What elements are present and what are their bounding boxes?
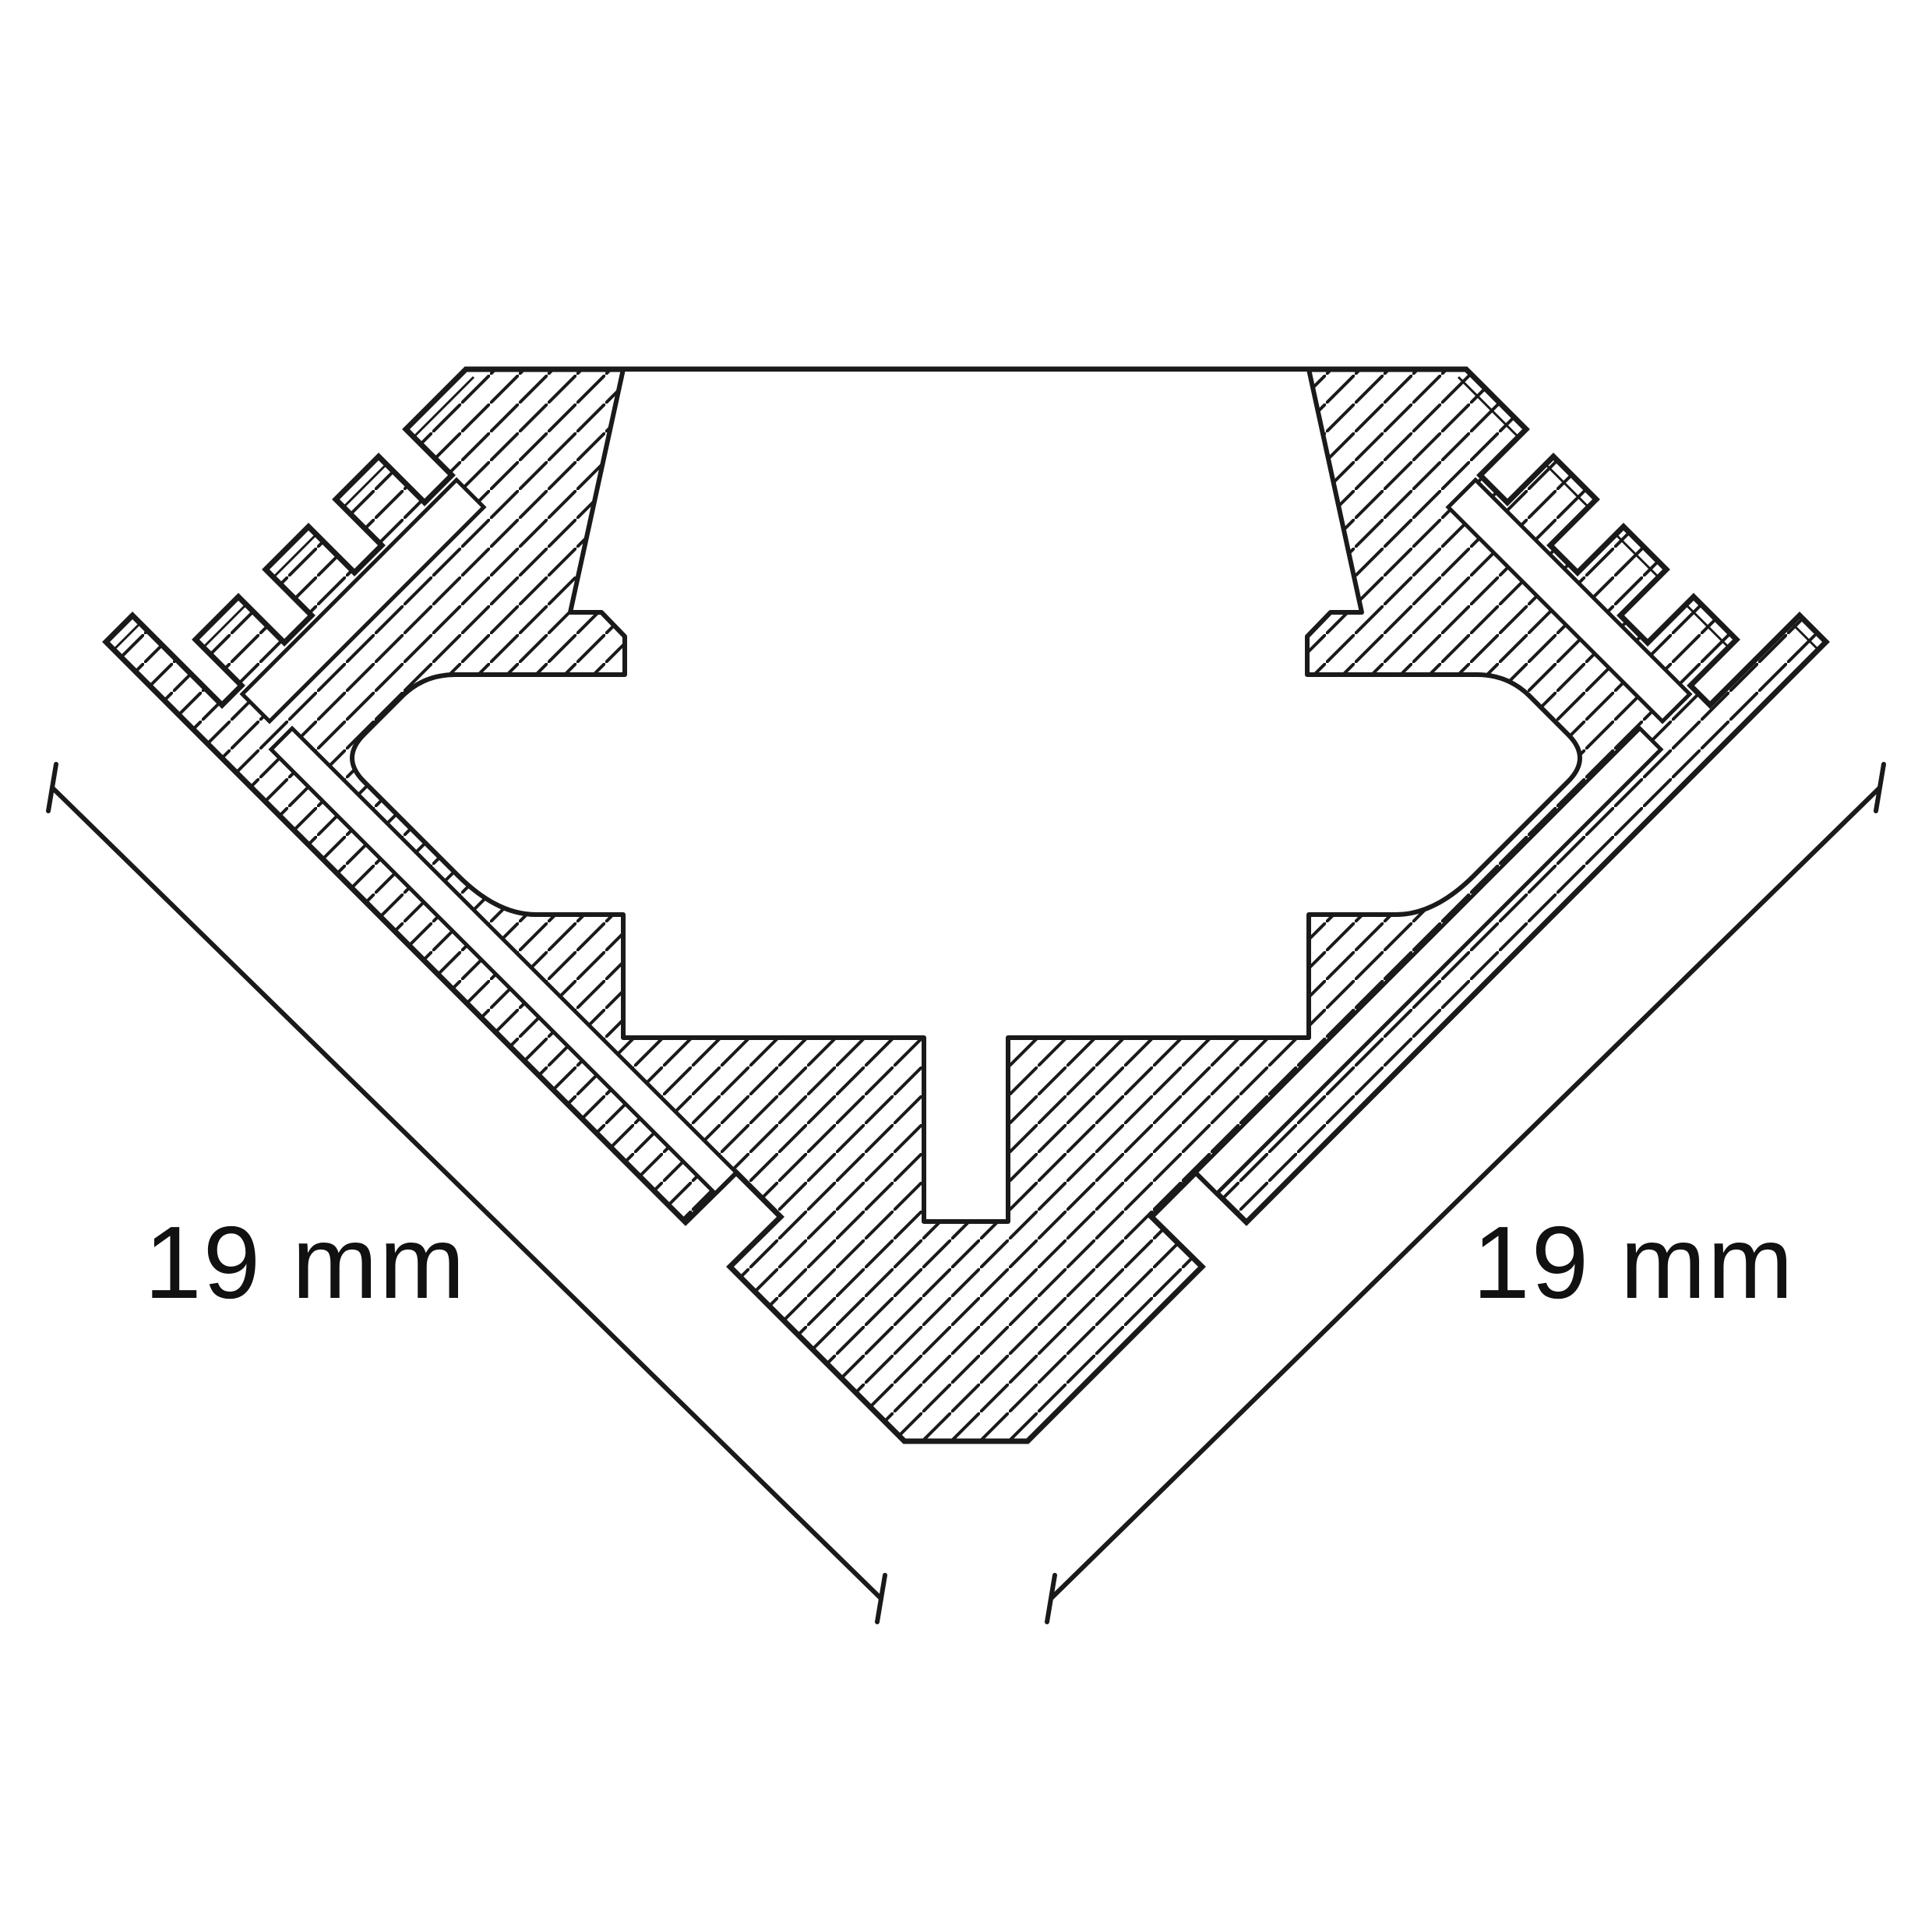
dimension-label-left: 19 mm: [144, 1205, 466, 1320]
profile-cross-section-drawing: 19 mm 19 mm: [0, 0, 1932, 1932]
technical-drawing-page: 19 mm 19 mm: [0, 0, 1932, 1932]
dimension-label-right: 19 mm: [1472, 1205, 1794, 1320]
